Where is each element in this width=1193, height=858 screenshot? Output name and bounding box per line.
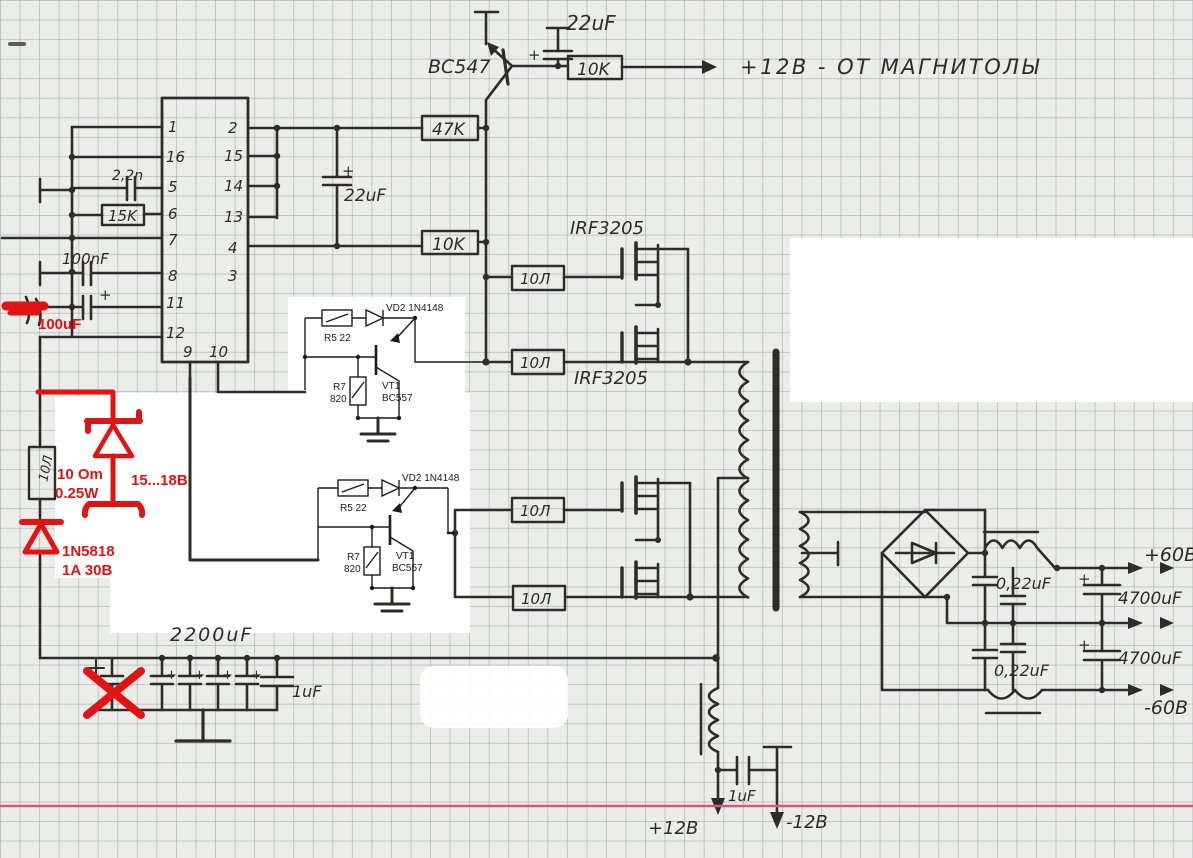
cap-22uf-top-label: 22uF — [566, 11, 616, 35]
output-minus60-label: -60В — [1144, 697, 1188, 719]
driver2-r7-value: 820 — [344, 564, 361, 575]
cap-2n2-label: 2,2n — [112, 168, 143, 184]
polarity-plus: + — [222, 668, 233, 683]
output-minus12-label: -12В — [786, 812, 828, 833]
driver1-r7-value: 820 — [330, 394, 347, 405]
red-cap-100uf-label: 100uF — [38, 316, 81, 333]
ic-pin-1: 1 — [168, 118, 178, 136]
resistor-15k-label: 15K — [108, 207, 138, 225]
output-plus12-label: +12В — [648, 818, 698, 839]
cap-022uf-top-label: 0,22uF — [996, 574, 1052, 593]
ic-pin-5: 5 — [168, 178, 178, 196]
driver1-vd2-label: VD2 1N4148 — [386, 303, 444, 314]
cap-4700uf-top-label: 4700uF — [1118, 589, 1182, 609]
resistor-47k-label: 47K — [432, 120, 467, 140]
cap-1uf-bank-label: 1uF — [292, 682, 322, 701]
driver1-bc557-label: BC557 — [382, 393, 413, 404]
driver2-r7-label: R7 — [347, 552, 360, 563]
red-zener-voltage-label: 15...18B — [131, 472, 188, 489]
deleted-capacitor-x-mark — [87, 671, 141, 715]
ic-pin-11: 11 — [166, 294, 185, 312]
mosfet-irf3205-top-label: IRF3205 — [570, 218, 644, 239]
white-patches — [55, 238, 1193, 728]
polarity-plus: + — [251, 668, 262, 683]
ic-pin-12: 12 — [166, 324, 185, 342]
ic-pin-9: 9 — [183, 343, 193, 361]
ic-pin-14: 14 — [224, 177, 243, 195]
driver2-r5-label: R5 22 — [340, 503, 367, 514]
driver2-vd2-label: VD2 1N4148 — [402, 473, 460, 484]
cap-4700uf-bottom-label: 4700uF — [1118, 649, 1182, 669]
gate-resistor-2-label: 10Л — [520, 354, 550, 372]
polarity-plus: + — [1078, 570, 1091, 588]
ic-pin-10: 10 — [209, 343, 228, 361]
controller-ic-outline — [162, 98, 248, 362]
driver2-bc557-label: BC557 — [392, 563, 423, 574]
gate-resistor-3-label: 10Л — [520, 502, 550, 520]
driver2-vt1-label: VT1 — [396, 551, 415, 562]
resistor-10k-mid-label: 10K — [432, 235, 467, 255]
ic-pin-8: 8 — [168, 267, 178, 285]
polarity-plus: + — [1078, 636, 1091, 654]
series-resistor-label: 10Л — [36, 454, 56, 483]
gate-resistor-1-label: 10Л — [520, 270, 550, 288]
schottky-diode-triangle — [25, 524, 57, 552]
red-diode-part-label: 1N5818 — [62, 543, 115, 560]
transistor-bc547-label: BC547 — [428, 56, 491, 78]
output-plus60-label: +60В — [1144, 544, 1193, 566]
polarity-plus: + — [528, 46, 541, 64]
red-resistor-power-label: 0.25W — [55, 485, 99, 502]
polarity-plus: + — [99, 286, 112, 304]
ic-pin-2: 2 — [228, 119, 238, 137]
cap-bank-2200uf-label: 2200uF — [170, 624, 253, 646]
ic-pin-16: 16 — [166, 148, 185, 166]
polarity-plus: + — [166, 668, 177, 683]
ic-pin-3: 3 — [228, 267, 238, 285]
resistor-10k-top-label: 10K — [577, 60, 612, 80]
cap-022uf-bottom-label: 0,22uF — [994, 661, 1050, 680]
driver1-r5-label: R5 22 — [324, 333, 351, 344]
ic-pin-6: 6 — [168, 205, 178, 223]
driver1-r7-label: R7 — [333, 382, 346, 393]
polarity-plus: + — [342, 162, 355, 180]
polarity-plus: + — [194, 668, 205, 683]
mosfet-irf3205-bottom-label: IRF3205 — [574, 368, 648, 389]
schematic-drawing: BC547 22uF 10K +12В - ОТ МАГНИТОЛЫ 47K 2… — [0, 0, 1193, 858]
cap-1uf-bottom-label: 1uF — [728, 787, 756, 805]
ic-pin-7: 7 — [168, 231, 178, 249]
red-diode-rating-label: 1A 30B — [62, 562, 112, 579]
cap-100n-label: 100nF — [62, 250, 109, 268]
gate-resistor-4-label: 10Л — [521, 590, 551, 608]
schematic-scan: BC547 22uF 10K +12В - ОТ МАГНИТОЛЫ 47K 2… — [0, 0, 1193, 858]
cap-22uf-mid-label: 22uF — [344, 186, 386, 206]
red-resistor-value-label: 10 Om — [57, 466, 103, 483]
ic-pin-15: 15 — [224, 147, 243, 165]
ic-pin-4: 4 — [228, 239, 238, 257]
supply-input-label: +12В - ОТ МАГНИТОЛЫ — [740, 55, 1041, 79]
driver1-vt1-label: VT1 — [382, 381, 401, 392]
ic-pin-13: 13 — [224, 208, 243, 226]
